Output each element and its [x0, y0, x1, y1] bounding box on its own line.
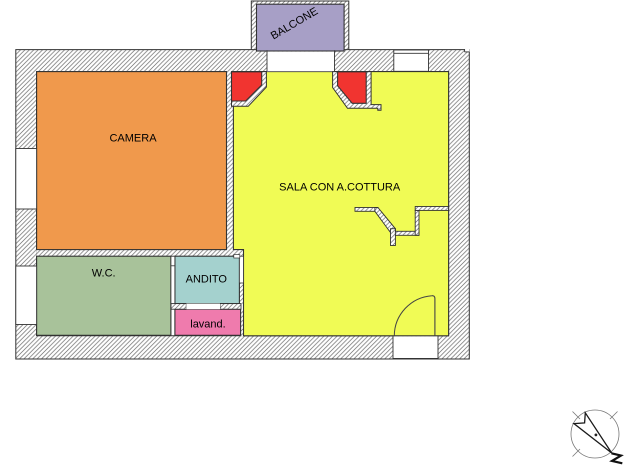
svg-text:CAMERA: CAMERA [109, 133, 157, 145]
svg-text:ANDITO: ANDITO [186, 274, 228, 286]
svg-text:lavand.: lavand. [190, 319, 225, 331]
svg-text:W.C.: W.C. [92, 268, 116, 280]
svg-text:SALA CON A.COTTURA: SALA CON A.COTTURA [279, 182, 401, 194]
